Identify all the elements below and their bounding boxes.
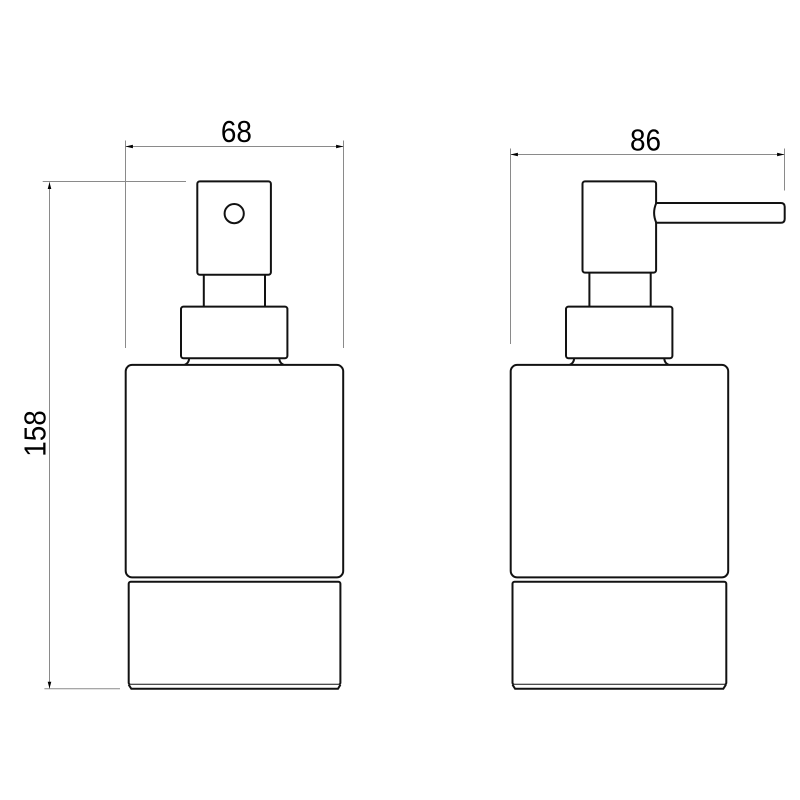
- svg-text:158: 158: [18, 410, 53, 457]
- svg-text:86: 86: [630, 123, 661, 158]
- svg-text:68: 68: [221, 114, 252, 149]
